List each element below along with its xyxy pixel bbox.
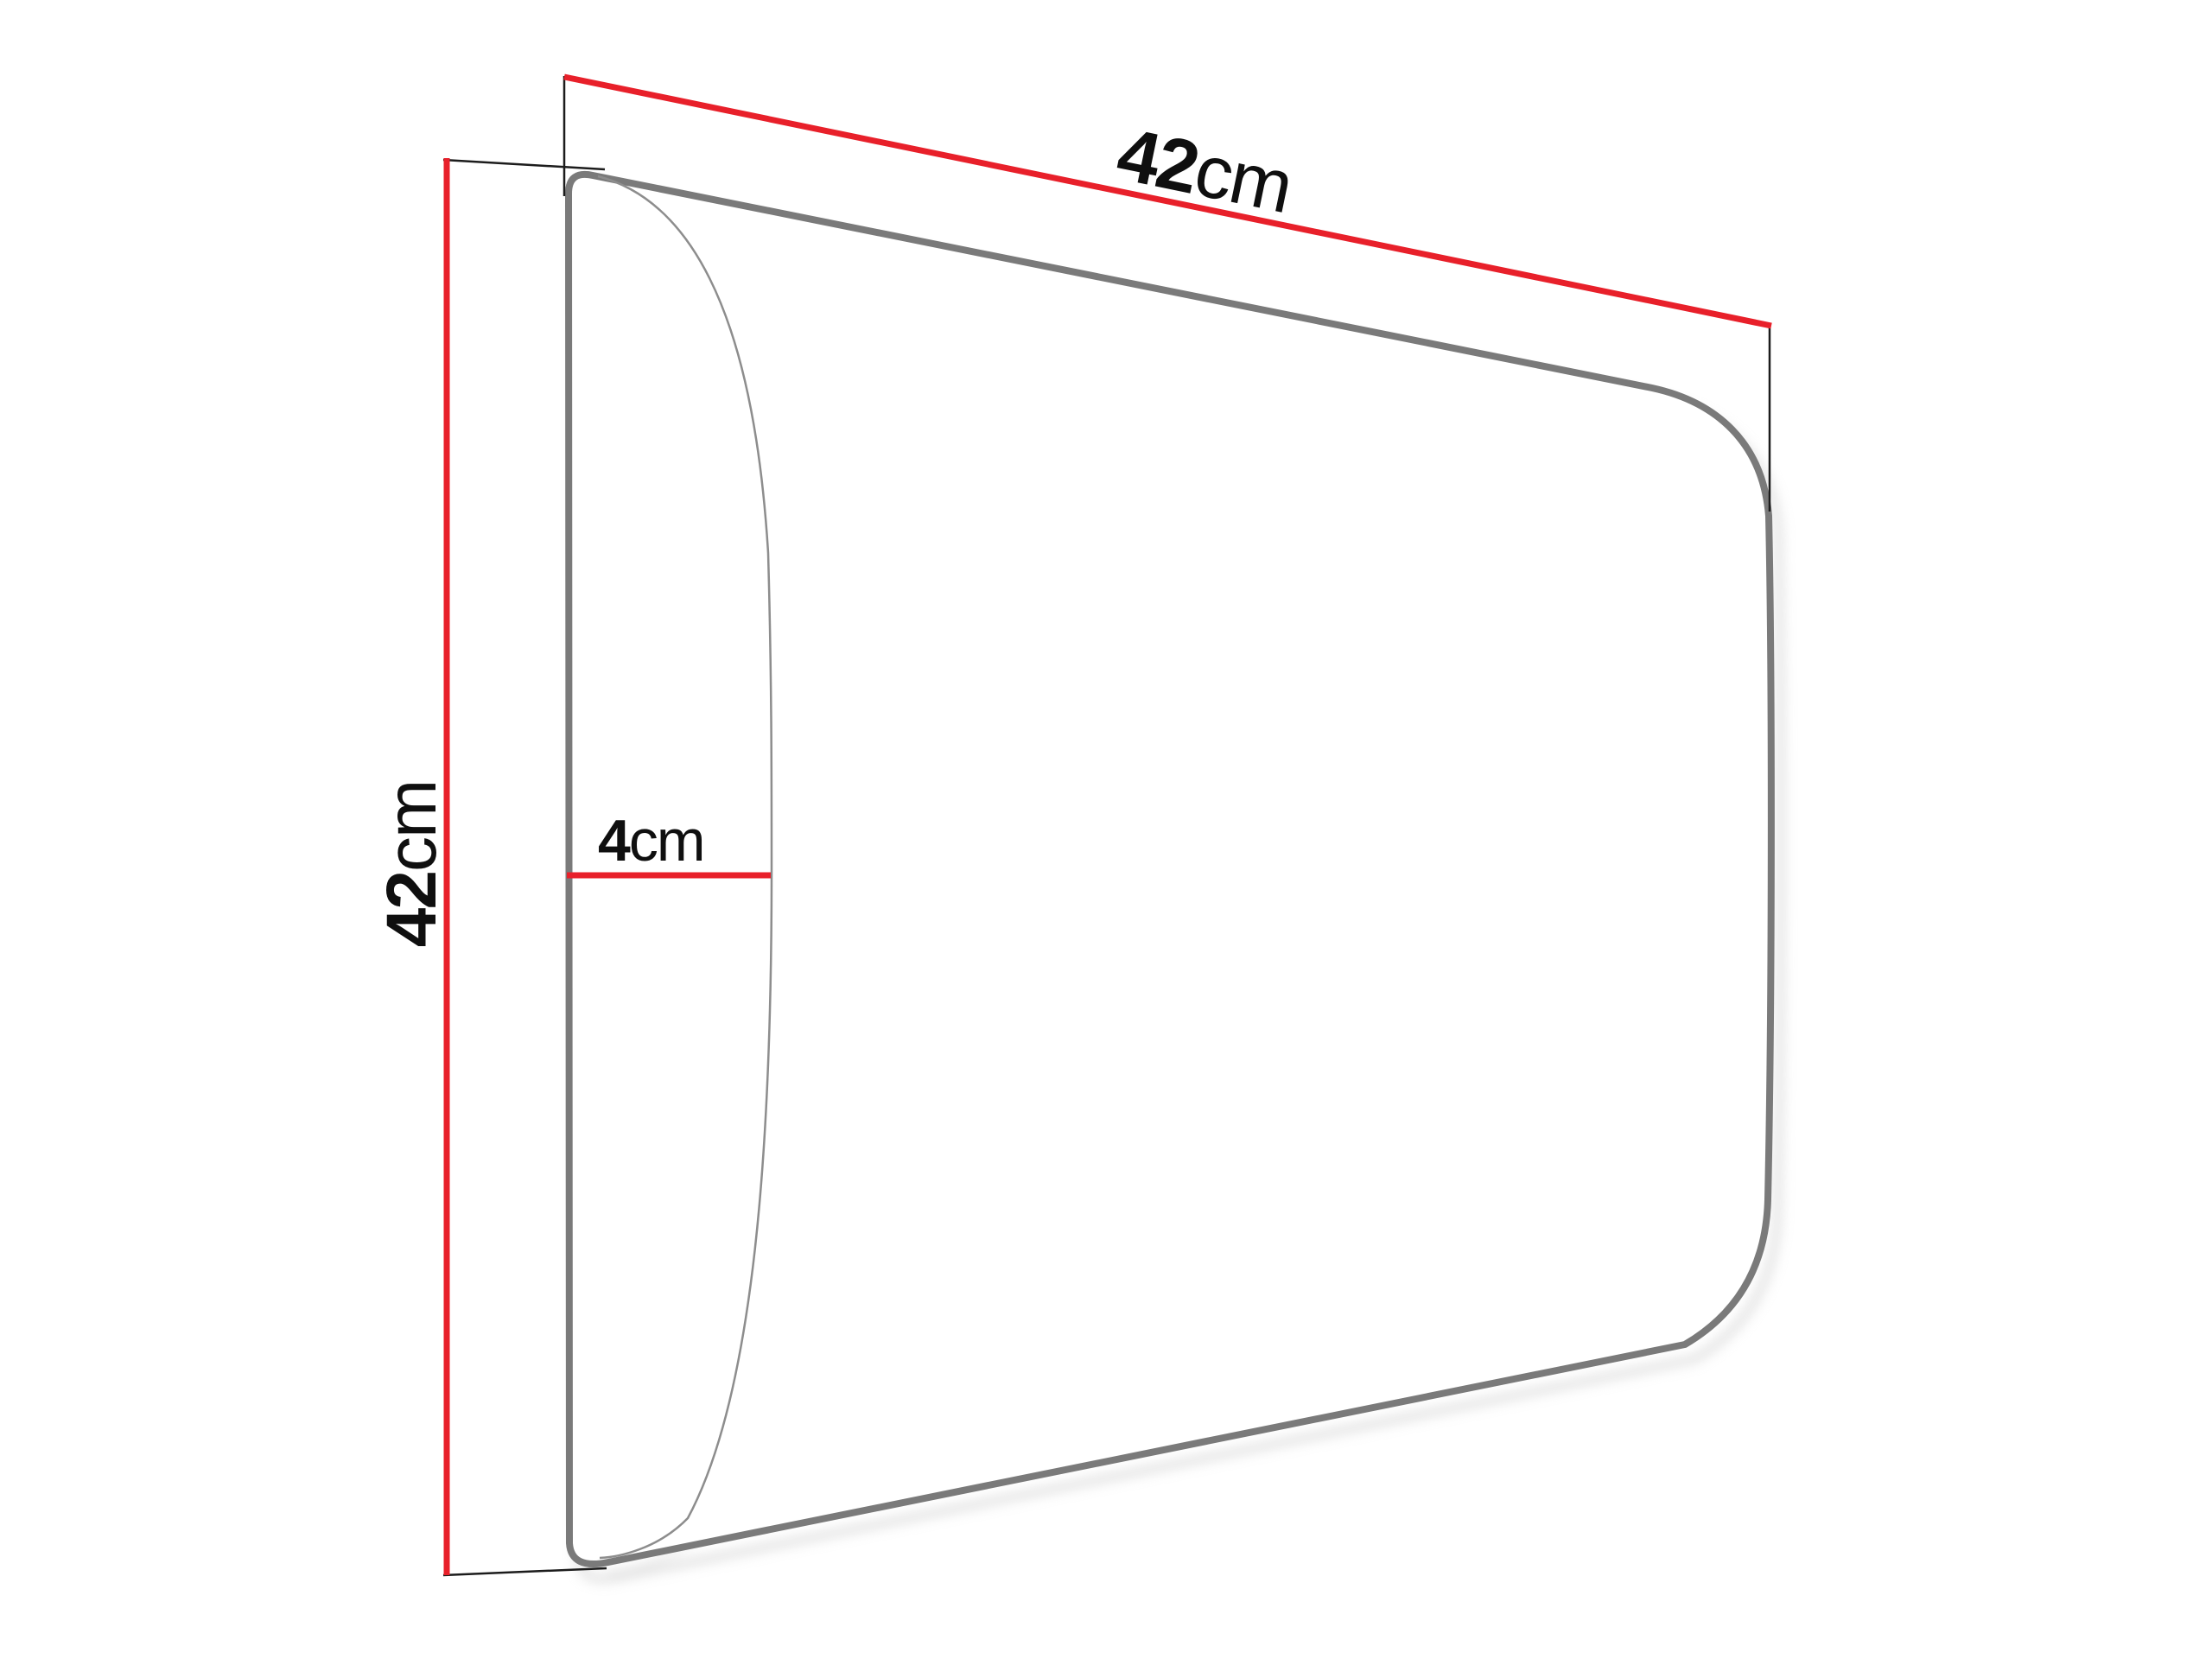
depth-dimension-label: 4cm: [598, 808, 703, 874]
panel-outline: [569, 175, 1771, 1564]
height-dimension-label: 42cm: [372, 781, 451, 948]
height-dimension-value: 42: [372, 872, 451, 947]
height-dimension-unit: cm: [372, 781, 451, 872]
dimension-diagram-page: 42cm 42cm 4cm: [0, 0, 2212, 1659]
depth-dimension-unit: cm: [629, 808, 704, 874]
depth-dimension-value: 4: [598, 808, 631, 874]
dimension-diagram-canvas: 42cm 42cm 4cm: [0, 0, 2212, 1659]
